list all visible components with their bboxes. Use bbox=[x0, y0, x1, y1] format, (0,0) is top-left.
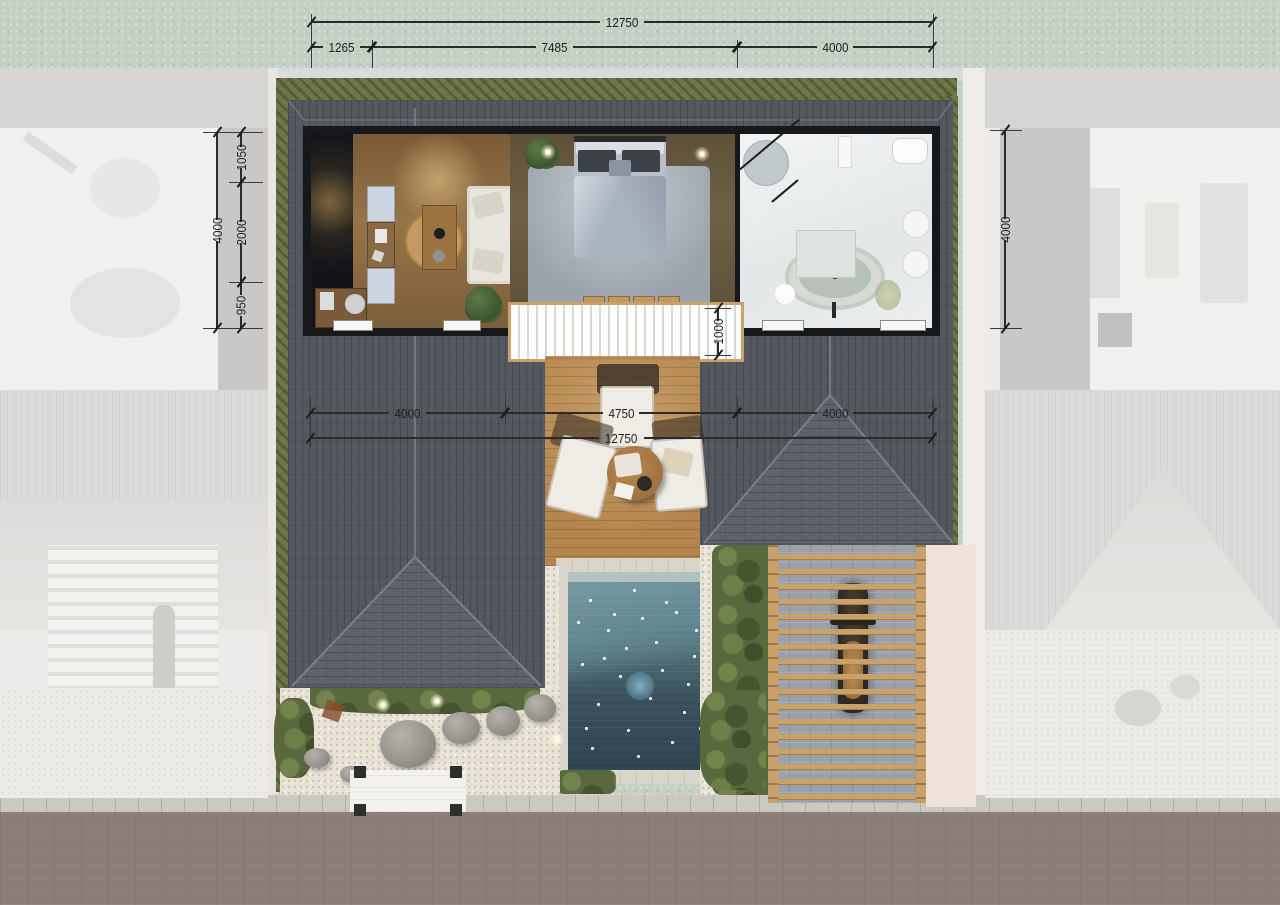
dim-line bbox=[240, 182, 242, 222]
coffee-maker bbox=[375, 229, 387, 243]
plant-living bbox=[465, 286, 501, 322]
kitchen-cabinet-upper bbox=[367, 186, 395, 222]
bowl bbox=[434, 228, 445, 239]
window-living-2 bbox=[443, 320, 481, 331]
dim-terrace-step: 1000 bbox=[711, 308, 725, 355]
wooden-deck bbox=[545, 356, 700, 566]
dim-middle-segment-3: 4000 bbox=[737, 406, 933, 420]
neighbor-right-table bbox=[1145, 203, 1179, 278]
neighbor-villa-left bbox=[0, 68, 268, 798]
sink bbox=[902, 250, 930, 278]
neighbor-right-living-room bbox=[1090, 128, 1280, 390]
boulder bbox=[304, 748, 330, 768]
boulder bbox=[486, 706, 520, 736]
garden-bushes-left bbox=[274, 698, 314, 778]
dim-label: 1265 bbox=[325, 41, 358, 54]
dim-label: 1000 bbox=[708, 318, 729, 344]
bedside-light bbox=[540, 144, 556, 160]
dim-line bbox=[639, 412, 737, 414]
tray bbox=[614, 452, 643, 477]
pergola-carport bbox=[768, 545, 926, 803]
gate-post bbox=[354, 766, 366, 778]
napkin bbox=[614, 482, 635, 500]
kettle bbox=[637, 476, 652, 491]
lounge-chair-left bbox=[545, 434, 617, 519]
pergola-rail-left bbox=[768, 545, 778, 803]
dim-line bbox=[240, 243, 242, 283]
neighbor-villa-right bbox=[985, 68, 1280, 798]
dim-middle-segment-1: 4000 bbox=[310, 406, 505, 420]
dim-top-segment-2: 7485 bbox=[372, 40, 737, 54]
dim-label: 4000 bbox=[995, 216, 1016, 242]
bath-mat bbox=[796, 230, 856, 278]
greenery-pool-bottom bbox=[556, 770, 616, 794]
coffee-table bbox=[422, 205, 457, 270]
neighbor-right-rock-garden bbox=[985, 630, 1280, 798]
dim-line bbox=[1004, 240, 1006, 329]
vase bbox=[433, 250, 445, 262]
sofa-cushion bbox=[471, 191, 505, 220]
dim-extension-line bbox=[203, 328, 263, 329]
window-bathroom-2 bbox=[880, 320, 926, 331]
duvet bbox=[574, 176, 666, 258]
dim-line bbox=[216, 241, 218, 329]
plant-bathroom bbox=[875, 280, 901, 310]
dim-left-segment-1: 1050 bbox=[234, 132, 248, 182]
garden-light bbox=[430, 694, 444, 708]
garden-bushes-right bbox=[700, 690, 766, 790]
dim-label: 4000 bbox=[818, 41, 851, 54]
dim-line bbox=[426, 412, 505, 414]
neighbor-right-roof-band bbox=[985, 68, 1280, 128]
dim-extension-line bbox=[933, 398, 934, 448]
dim-label: 4750 bbox=[604, 407, 637, 420]
towel-shelf bbox=[838, 136, 852, 168]
dim-line bbox=[644, 21, 933, 23]
pool-water bbox=[568, 572, 712, 770]
boulder bbox=[442, 712, 480, 744]
neighbor-right-roof-edge bbox=[1000, 128, 1090, 390]
hedge-top bbox=[276, 78, 957, 102]
sofa-cushion bbox=[471, 248, 504, 275]
dim-left-segment-2: 2000 bbox=[234, 182, 248, 282]
dim-label: 2000 bbox=[231, 219, 252, 245]
toilet bbox=[892, 138, 928, 164]
garden-light bbox=[550, 732, 564, 746]
dim-line bbox=[853, 412, 933, 414]
dim-label: 1050 bbox=[231, 144, 252, 170]
deck-table bbox=[607, 446, 663, 500]
dim-line bbox=[216, 132, 218, 220]
sink bbox=[902, 210, 930, 238]
dim-label: 4000 bbox=[818, 407, 851, 420]
dim-left-total: 4000 bbox=[210, 132, 224, 328]
bathroom bbox=[740, 134, 932, 328]
gate-post bbox=[450, 766, 462, 778]
pergola-rail-right bbox=[916, 545, 926, 803]
boulder bbox=[524, 694, 556, 722]
dim-label: 12750 bbox=[602, 16, 642, 29]
chair-pillow bbox=[660, 447, 695, 477]
dim-label: 12750 bbox=[602, 432, 642, 445]
neighbor-right-cabinet bbox=[1090, 188, 1120, 298]
bed bbox=[574, 138, 666, 258]
living-room bbox=[353, 134, 510, 328]
dim-label: 7485 bbox=[538, 41, 571, 54]
window-bathroom-1 bbox=[762, 320, 804, 331]
dim-line bbox=[644, 437, 933, 439]
kitchen-cabinet-lower bbox=[367, 268, 395, 304]
sofa bbox=[467, 186, 513, 284]
pergola-slats bbox=[768, 545, 926, 803]
boulder bbox=[380, 720, 436, 768]
dim-label: 950 bbox=[231, 295, 252, 315]
neighbor-left-roof-band bbox=[0, 68, 268, 128]
neighbor-left-partition bbox=[23, 132, 78, 175]
dim-line bbox=[737, 412, 817, 414]
dim-line bbox=[372, 46, 536, 48]
dim-top-segment-3: 4000 bbox=[737, 40, 933, 54]
kitchen-counter bbox=[367, 222, 395, 268]
dim-line bbox=[1004, 130, 1006, 219]
dim-line bbox=[310, 437, 599, 439]
desk-chair bbox=[345, 294, 365, 314]
site-plan-rendering: 12750 1265 7485 4000 4000 1050 bbox=[0, 0, 1280, 905]
window-living-1 bbox=[333, 320, 373, 331]
neighbor-right-boulder bbox=[1170, 675, 1200, 699]
dim-line bbox=[853, 46, 933, 48]
dim-label: 4000 bbox=[391, 407, 424, 420]
dim-left-segment-3: 950 bbox=[234, 282, 248, 328]
neighbor-left-bathtub bbox=[70, 268, 180, 338]
garden-light bbox=[376, 698, 390, 712]
bedside-light bbox=[694, 146, 710, 162]
neighbor-right-desk bbox=[1098, 313, 1132, 347]
gate-post bbox=[450, 804, 462, 816]
dim-middle-total: 12750 bbox=[310, 431, 933, 445]
side-wall bbox=[926, 545, 976, 807]
dim-line bbox=[573, 46, 737, 48]
neighbor-left-rock-garden bbox=[0, 688, 268, 798]
road bbox=[0, 812, 1280, 905]
laptop bbox=[320, 292, 334, 310]
dim-line bbox=[737, 46, 817, 48]
dim-line bbox=[505, 412, 603, 414]
dim-label: 4000 bbox=[207, 217, 228, 243]
pool-light bbox=[626, 672, 654, 700]
neighbor-right-sofa bbox=[1200, 183, 1248, 303]
bedroom bbox=[510, 134, 735, 328]
dim-top-total: 12750 bbox=[311, 15, 933, 29]
dim-right-total: 4000 bbox=[998, 130, 1012, 328]
kitchen-item bbox=[372, 250, 385, 263]
dim-top-segment-1: 1265 bbox=[311, 40, 372, 54]
dim-middle-segment-2: 4750 bbox=[505, 406, 737, 420]
gate-post bbox=[354, 804, 366, 816]
pool-step bbox=[568, 572, 712, 582]
neighbor-left-bathroom bbox=[0, 128, 218, 390]
dim-line bbox=[311, 21, 600, 23]
bathtub-faucet bbox=[832, 302, 836, 318]
pool-sparkles bbox=[568, 572, 569, 573]
entrance-walkway bbox=[350, 770, 466, 812]
neighbor-left-shower bbox=[90, 158, 160, 218]
neighbor-right-boulder bbox=[1115, 690, 1161, 726]
pillow-accent bbox=[609, 160, 631, 176]
dim-line bbox=[310, 412, 389, 414]
towel-roll bbox=[775, 284, 795, 304]
